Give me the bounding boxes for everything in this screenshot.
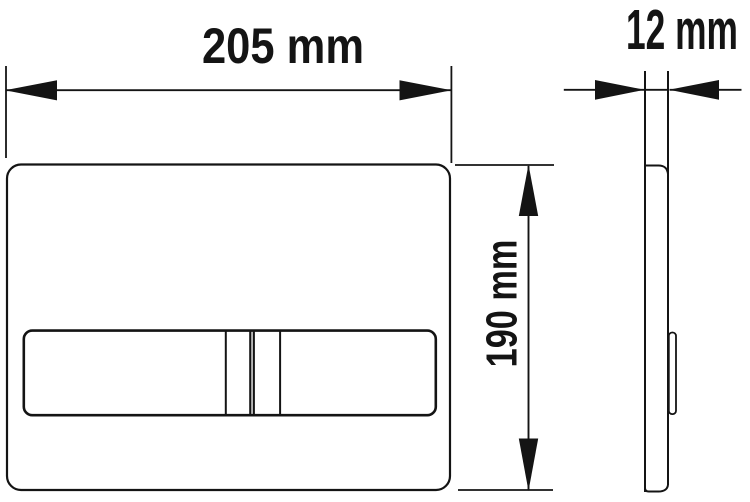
svg-text:205 mm: 205 mm xyxy=(202,18,364,73)
svg-text:190 mm: 190 mm xyxy=(477,240,526,368)
svg-text:12 mm: 12 mm xyxy=(626,0,738,62)
